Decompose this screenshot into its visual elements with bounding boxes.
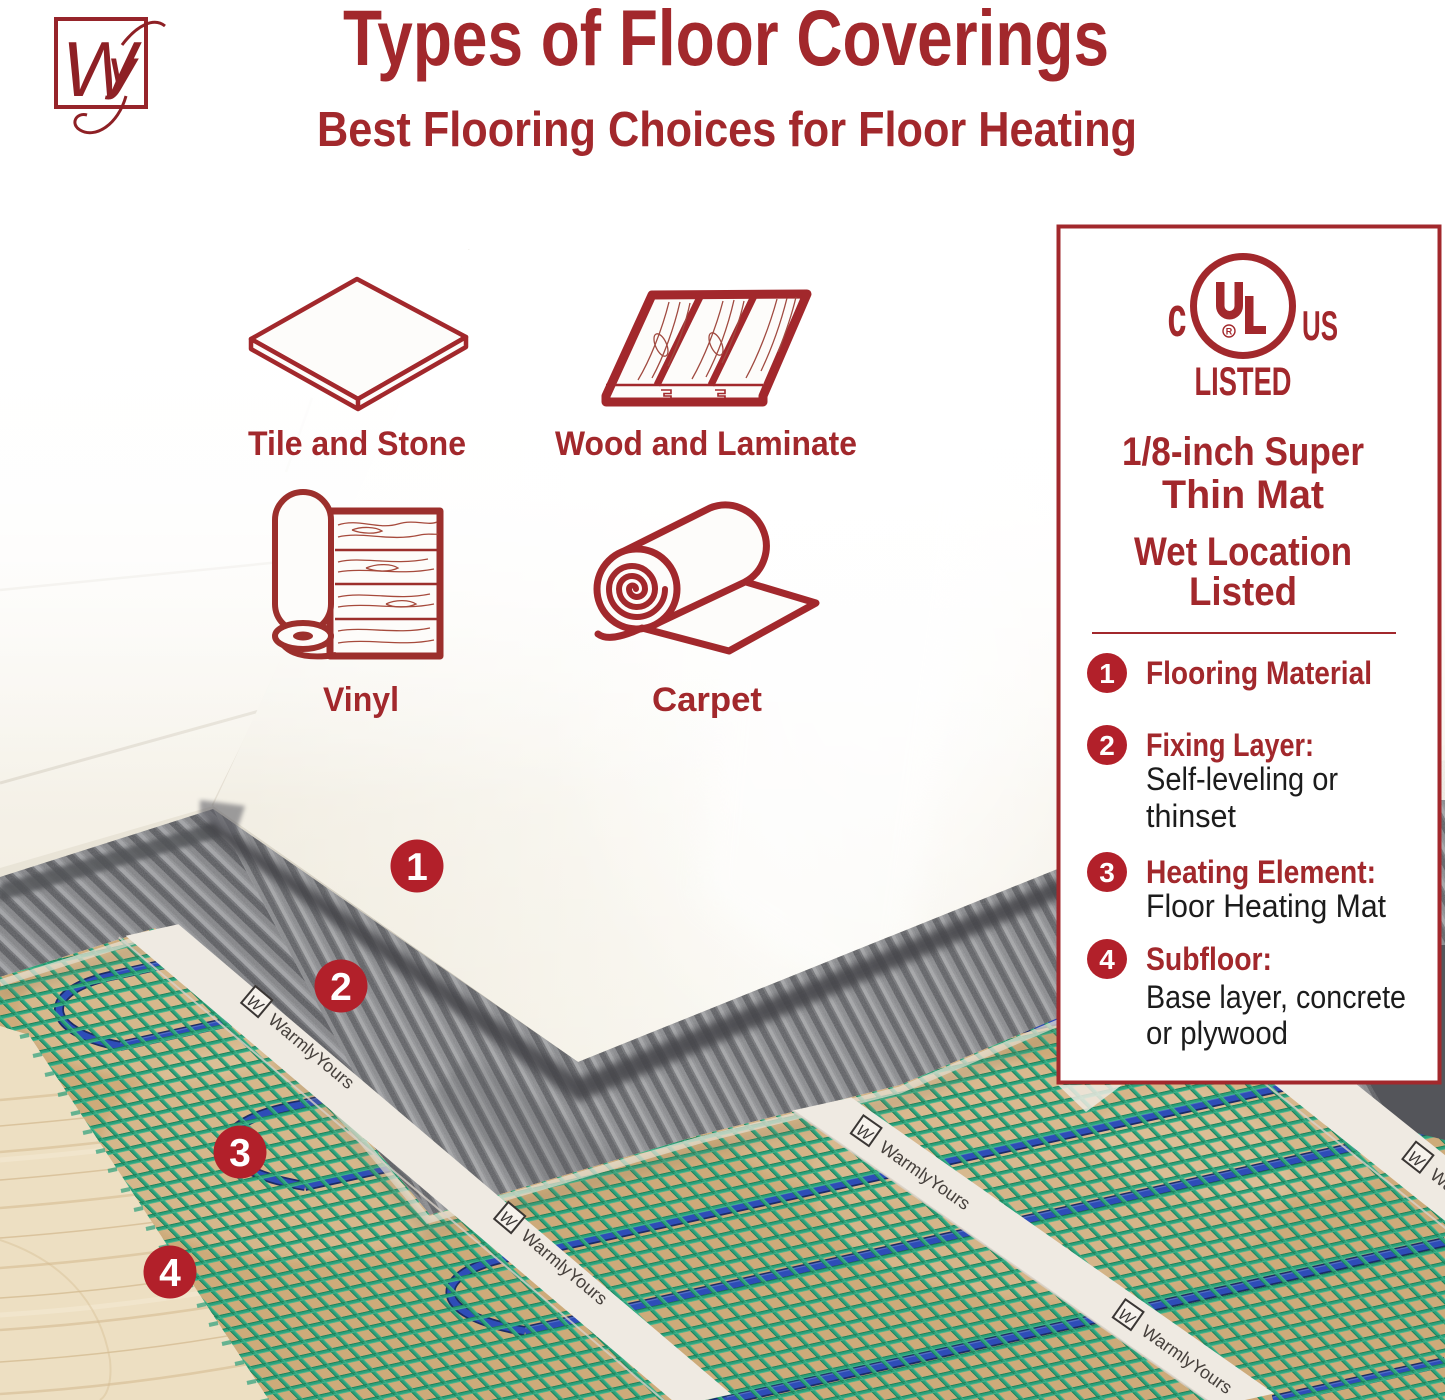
svg-text:thinset: thinset: [1146, 798, 1236, 834]
svg-text:Types of Floor Coverings: Types of Floor Coverings: [343, 0, 1109, 82]
svg-text:R: R: [1226, 327, 1233, 337]
svg-text:4: 4: [1099, 944, 1115, 975]
svg-text:Heating Element:: Heating Element:: [1146, 854, 1376, 890]
svg-text:Thin Mat: Thin Mat: [1162, 473, 1324, 517]
svg-text:Carpet: Carpet: [652, 681, 762, 719]
svg-text:Vinyl: Vinyl: [323, 681, 399, 719]
svg-text:Wood and Laminate: Wood and Laminate: [555, 425, 857, 463]
svg-text:Base layer, concrete: Base layer, concrete: [1146, 979, 1406, 1015]
svg-text:4: 4: [159, 1252, 181, 1295]
svg-text:Floor Heating Mat: Floor Heating Mat: [1146, 888, 1386, 924]
svg-text:2: 2: [1099, 730, 1115, 761]
svg-text:Listed: Listed: [1189, 570, 1297, 614]
svg-text:y: y: [104, 37, 139, 100]
svg-text:1/8-inch Super: 1/8-inch Super: [1122, 430, 1364, 474]
svg-text:Fixing Layer:: Fixing Layer:: [1146, 727, 1314, 763]
svg-text:c: c: [1168, 285, 1187, 349]
svg-text:Flooring Material: Flooring Material: [1146, 655, 1372, 691]
svg-text:3: 3: [229, 1132, 251, 1175]
svg-text:Subfloor:: Subfloor:: [1146, 941, 1272, 977]
svg-text:1: 1: [1099, 658, 1115, 689]
svg-text:Best Flooring Choices for Floo: Best Flooring Choices for Floor Heating: [317, 103, 1137, 157]
svg-text:LISTED: LISTED: [1195, 360, 1292, 404]
svg-text:Tile and Stone: Tile and Stone: [248, 425, 466, 463]
svg-text:US: US: [1302, 302, 1338, 349]
svg-text:2: 2: [330, 966, 352, 1009]
svg-text:or plywood: or plywood: [1146, 1015, 1288, 1051]
svg-text:Self-leveling or: Self-leveling or: [1146, 761, 1338, 797]
svg-text:Wet Location: Wet Location: [1134, 530, 1352, 574]
svg-text:3: 3: [1099, 857, 1115, 888]
svg-text:1: 1: [406, 846, 428, 889]
